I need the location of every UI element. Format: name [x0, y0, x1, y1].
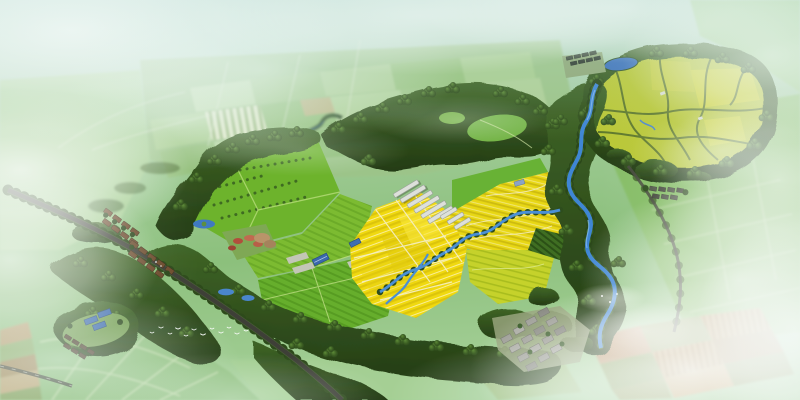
aerial-landscape-render: Bird's-eye master-plan rendering of a ru…	[0, 0, 800, 400]
haze-overlay-sides	[0, 0, 800, 400]
